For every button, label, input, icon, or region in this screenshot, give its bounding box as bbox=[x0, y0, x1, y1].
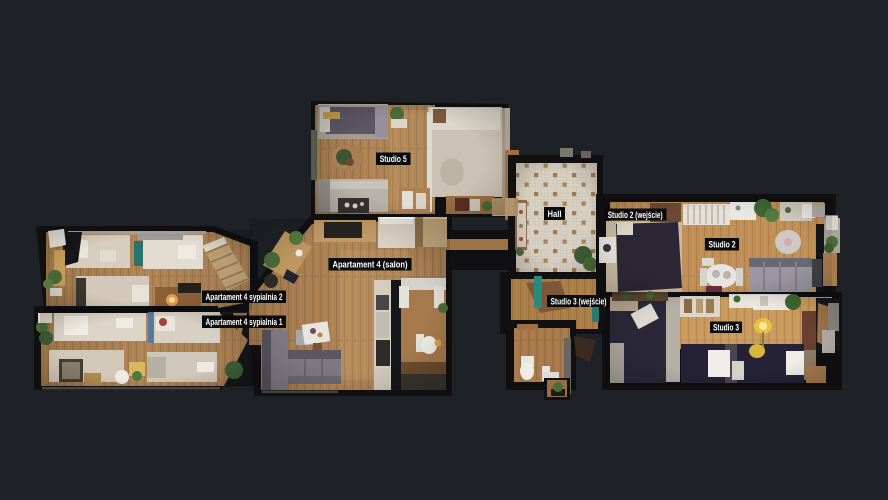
svg-text:Apartament 4 (salon): Apartament 4 (salon) bbox=[333, 260, 408, 270]
svg-text:Apartament 4 sypialnia 1: Apartament 4 sypialnia 1 bbox=[206, 317, 283, 327]
svg-text:Studio 2 (wejście): Studio 2 (wejście) bbox=[608, 210, 663, 220]
svg-text:Studio 5: Studio 5 bbox=[380, 154, 407, 164]
svg-text:Studio 3 (wejście): Studio 3 (wejście) bbox=[551, 297, 607, 307]
svg-text:Studio 3: Studio 3 bbox=[713, 323, 739, 333]
svg-text:Hall: Hall bbox=[548, 209, 562, 219]
svg-text:Studio 2: Studio 2 bbox=[709, 240, 736, 250]
svg-text:Apartament 4 sypialnia 2: Apartament 4 sypialnia 2 bbox=[206, 292, 283, 302]
